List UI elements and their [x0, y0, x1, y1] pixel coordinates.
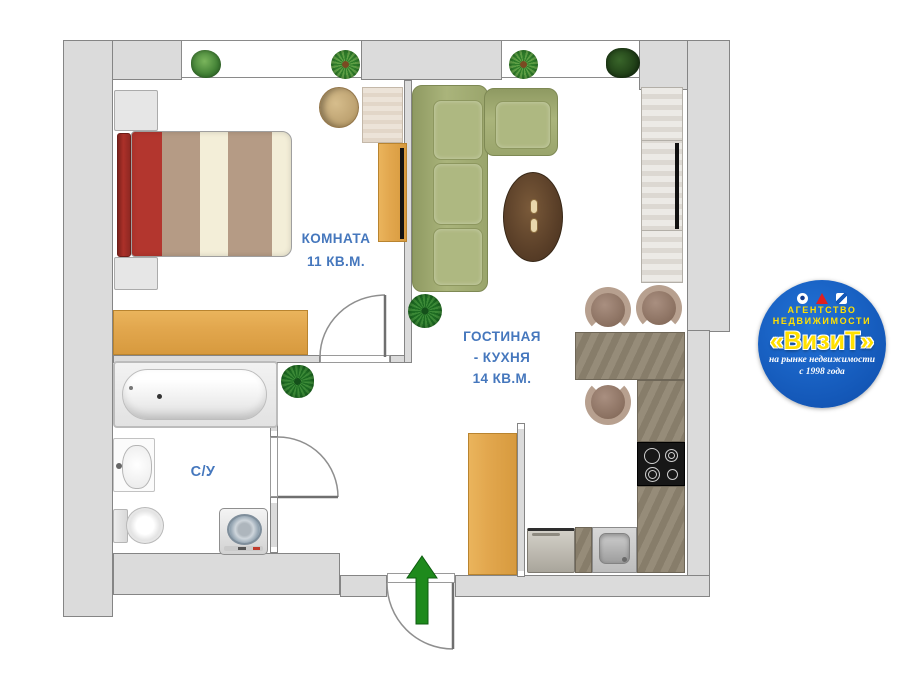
- kitchen-counter-small: [575, 527, 592, 573]
- kitchen-tall-cabinet: [468, 433, 517, 575]
- unit-divider: [642, 230, 682, 231]
- bathtub-basin: [122, 369, 267, 420]
- living-label-2: - КУХНЯ: [446, 350, 558, 366]
- bedroom-door-opening: [320, 355, 390, 363]
- table-detail: [530, 218, 538, 233]
- logo-brand: «ВизиТ»: [758, 328, 886, 355]
- logo-line2: НЕДВИЖИМОСТИ: [758, 316, 886, 327]
- sofa-cushion: [433, 100, 483, 160]
- burner: [645, 467, 660, 482]
- plant-icon: [281, 365, 314, 398]
- sofa-vertical-section: [412, 85, 488, 292]
- bedroom-area-label: 11 КВ.М.: [280, 254, 392, 270]
- logo-triangle-icon: [816, 293, 828, 304]
- wall-bottom-right: [455, 575, 710, 597]
- refrigerator: [527, 528, 575, 573]
- sofa-cushion: [495, 101, 551, 149]
- bathtub-faucet: [129, 386, 133, 390]
- chair-seat: [591, 385, 625, 419]
- cooktop: [637, 442, 685, 486]
- bathtub: [113, 361, 278, 428]
- plant-icon: [509, 50, 538, 79]
- sofa-horizontal-section: [484, 88, 558, 156]
- entry-door-opening: [387, 573, 455, 583]
- chair-seat: [642, 291, 676, 325]
- bathtub-drain: [157, 394, 162, 399]
- logo-letter-icon: [836, 293, 847, 304]
- bathroom-door: [278, 437, 338, 497]
- dining-table: [503, 172, 563, 262]
- wall-top-middle: [361, 40, 502, 80]
- table-detail: [530, 199, 538, 214]
- bedroom-dresser: [362, 87, 403, 143]
- washer-drum: [227, 514, 262, 545]
- logo-tagline2: с 1998 года: [758, 367, 886, 379]
- sink-faucet: [116, 463, 122, 469]
- wardrobe-low: [113, 310, 308, 355]
- wall-entry-left: [340, 575, 387, 597]
- tv-screen: [675, 143, 679, 229]
- bedroom-armchair: [319, 87, 359, 128]
- wall-left: [63, 40, 113, 617]
- living-label: ГОСТИНАЯ: [446, 329, 558, 345]
- logo-line1: АГЕНТСТВО: [758, 305, 886, 316]
- kitchen-counter-right-upper: [637, 380, 685, 442]
- entrance-arrow-icon: [407, 556, 437, 624]
- bathroom-sink: [113, 438, 155, 492]
- kitchen-faucet: [622, 557, 627, 562]
- logo-emblem-icon: [797, 293, 808, 304]
- burner: [665, 449, 678, 462]
- tv-wall-unit: [641, 87, 683, 283]
- wall-bathroom-bottom: [113, 553, 340, 595]
- bookshelf-accent: [400, 148, 404, 239]
- kitchen-sink: [592, 527, 637, 573]
- bedroom-bookshelf: [378, 143, 407, 242]
- plant-icon: [191, 50, 221, 78]
- entrance-door: [387, 583, 453, 649]
- toilet-bowl: [126, 507, 164, 544]
- bedroom-label: КОМНАТА: [280, 231, 392, 247]
- nightstand-top: [114, 90, 158, 131]
- plant-icon: [408, 294, 442, 328]
- sofa-cushion: [433, 228, 483, 286]
- chair: [585, 287, 631, 333]
- kitchen-counter-top: [575, 332, 685, 380]
- kitchen-counter-right-lower: [637, 486, 685, 573]
- wall-right-upper: [687, 40, 730, 332]
- chair: [585, 379, 631, 425]
- chair: [636, 285, 682, 331]
- bed-headboard: [117, 133, 131, 257]
- burner: [667, 469, 678, 480]
- bed: [131, 131, 292, 257]
- bathroom-label: С/У: [180, 464, 226, 480]
- floor-plan: КОМНАТА 11 КВ.М. ГОСТИНАЯ - КУХНЯ 14 КВ.…: [0, 0, 898, 700]
- agency-logo: АГЕНТСТВО НЕДВИЖИМОСТИ «ВизиТ» на рынке …: [758, 280, 886, 408]
- wall-bathroom-right-lower: [270, 497, 278, 553]
- wall-right-lower: [687, 330, 710, 597]
- logo-icons-row: [758, 293, 886, 305]
- sink-basin: [122, 445, 152, 489]
- washing-machine: [219, 508, 268, 555]
- washer-display: [238, 547, 246, 550]
- wall-kitchen-partition: [517, 423, 525, 577]
- plant-icon: [331, 50, 360, 79]
- fridge-handle: [532, 533, 560, 536]
- living-area-label: 14 КВ.М.: [446, 371, 558, 387]
- washer-indicator: [253, 547, 260, 550]
- logo-tagline1: на рынке недвижимости: [758, 355, 886, 367]
- bedroom-door: [320, 295, 385, 357]
- burner: [644, 448, 660, 464]
- nightstand-bottom: [114, 257, 158, 290]
- chair-seat: [591, 293, 625, 327]
- bathroom-door-opening: [270, 437, 278, 497]
- sofa-cushion: [433, 163, 483, 225]
- unit-divider: [642, 140, 682, 141]
